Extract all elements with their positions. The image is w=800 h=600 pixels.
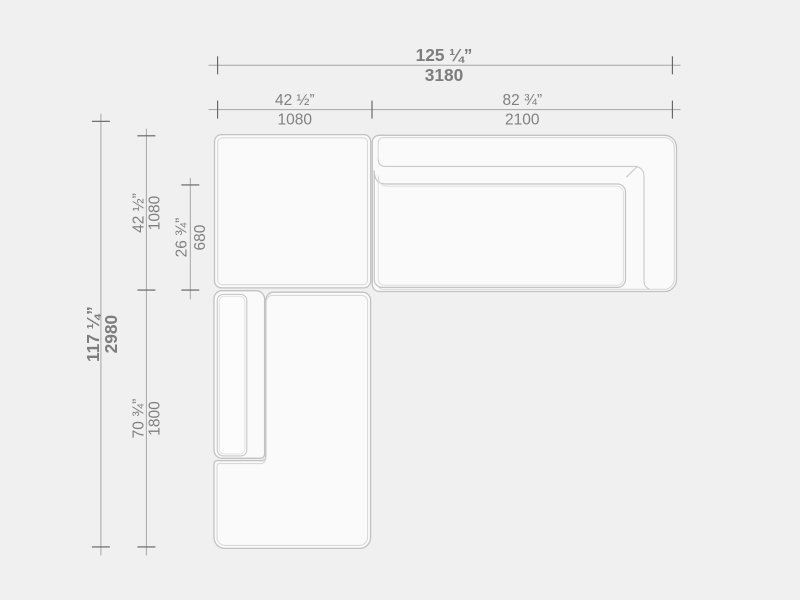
svg-text:680: 680: [192, 224, 209, 250]
svg-text:26 ¾”: 26 ¾”: [173, 218, 190, 258]
svg-text:117 ¼”: 117 ¼”: [83, 306, 103, 362]
svg-text:1080: 1080: [147, 195, 164, 230]
svg-text:70 ¾”: 70 ¾”: [130, 399, 147, 439]
svg-text:2100: 2100: [505, 112, 540, 129]
svg-text:3180: 3180: [425, 65, 463, 85]
svg-text:1800: 1800: [147, 401, 164, 436]
svg-text:2980: 2980: [101, 315, 121, 353]
svg-text:1080: 1080: [278, 112, 313, 129]
svg-text:125 ¼”: 125 ¼”: [416, 45, 473, 65]
svg-text:42 ½”: 42 ½”: [275, 92, 315, 109]
svg-text:82 ¾”: 82 ¾”: [502, 92, 542, 109]
svg-text:42 ½”: 42 ½”: [130, 193, 147, 233]
